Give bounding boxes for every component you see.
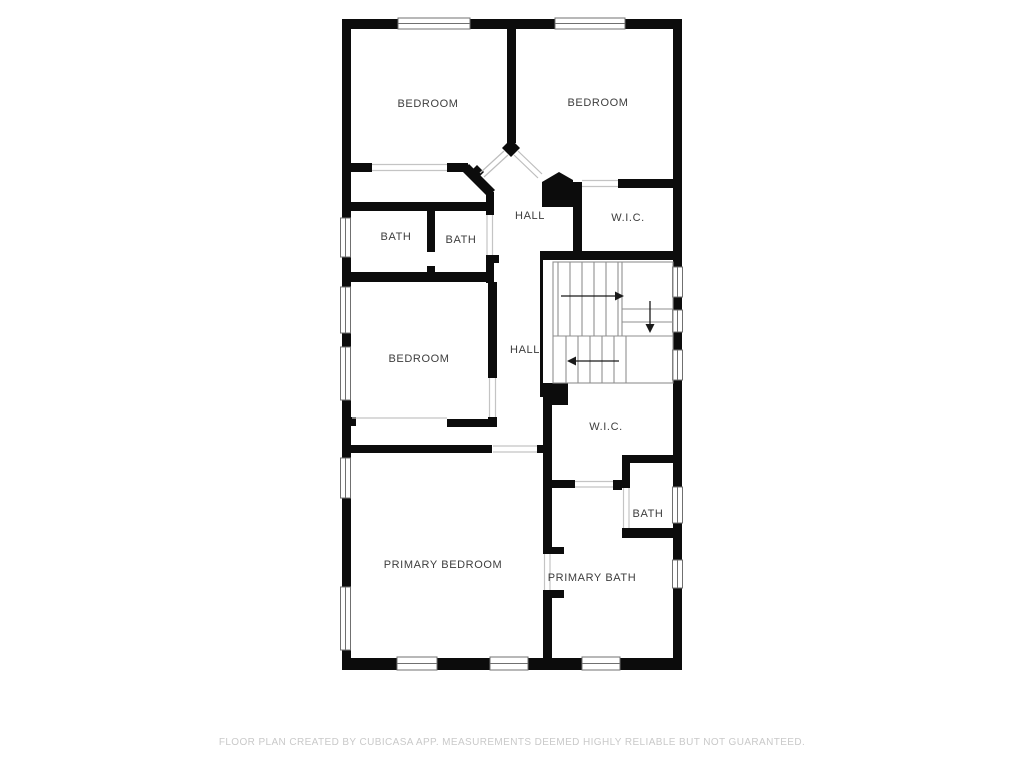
room-label-bedroom-top-left: BEDROOM [397, 98, 458, 110]
staircase [553, 262, 673, 383]
room-label-primary-bath: PRIMARY BATH [548, 572, 637, 584]
room-label-hall-lower: HALL [510, 344, 540, 356]
stair-direction-arrows [561, 292, 655, 366]
room-label-hall-upper: HALL [515, 210, 545, 222]
room-label-bath-small: BATH [633, 508, 664, 520]
floorplan-drawing [0, 0, 1024, 768]
room-label-bath-left: BATH [381, 231, 412, 243]
room-label-bath-center: BATH [446, 234, 477, 246]
footer-disclaimer: FLOOR PLAN CREATED BY CUBICASA APP. MEAS… [219, 737, 805, 748]
room-label-bedroom-middle: BEDROOM [388, 353, 449, 365]
floorplan-page: BEDROOM BEDROOM HALL W.I.C. BATH BATH BE… [0, 0, 1024, 768]
room-label-wic-lower: W.I.C. [589, 421, 623, 433]
room-label-bedroom-top-right: BEDROOM [567, 97, 628, 109]
room-label-primary-bedroom: PRIMARY BEDROOM [384, 559, 503, 571]
stair-arrow-down-icon [646, 301, 655, 333]
room-label-wic-upper: W.I.C. [611, 212, 645, 224]
stair-arrow-left-icon [567, 357, 619, 366]
